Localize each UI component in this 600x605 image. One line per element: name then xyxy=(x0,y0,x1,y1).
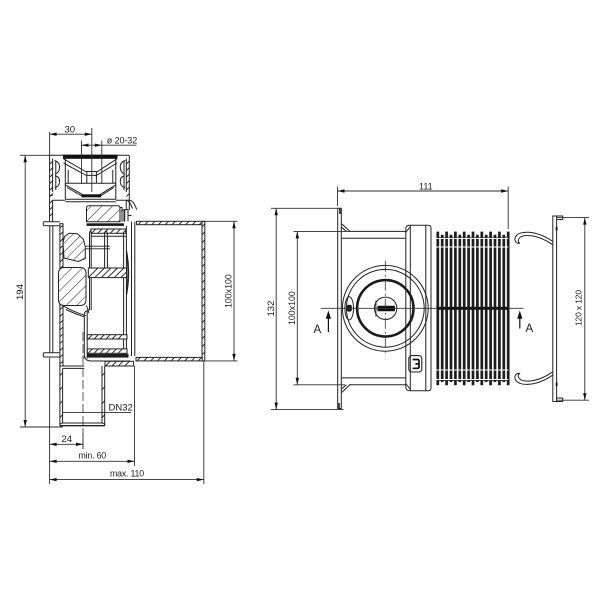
svg-text:30: 30 xyxy=(65,124,76,135)
svg-text:A: A xyxy=(526,323,534,335)
svg-text:DN32: DN32 xyxy=(109,403,133,414)
svg-text:100x100: 100x100 xyxy=(287,291,297,325)
svg-text:max. 110: max. 110 xyxy=(110,469,144,479)
svg-text:120 x 120: 120 x 120 xyxy=(574,290,584,326)
svg-text:24: 24 xyxy=(62,434,73,445)
svg-text:ø 20-32: ø 20-32 xyxy=(107,135,137,145)
svg-text:111: 111 xyxy=(419,182,433,192)
svg-text:min. 60: min. 60 xyxy=(79,450,107,460)
svg-text:A: A xyxy=(314,324,322,336)
svg-text:132: 132 xyxy=(266,301,277,317)
svg-text:194: 194 xyxy=(15,284,26,300)
svg-text:100x100: 100x100 xyxy=(224,274,234,308)
